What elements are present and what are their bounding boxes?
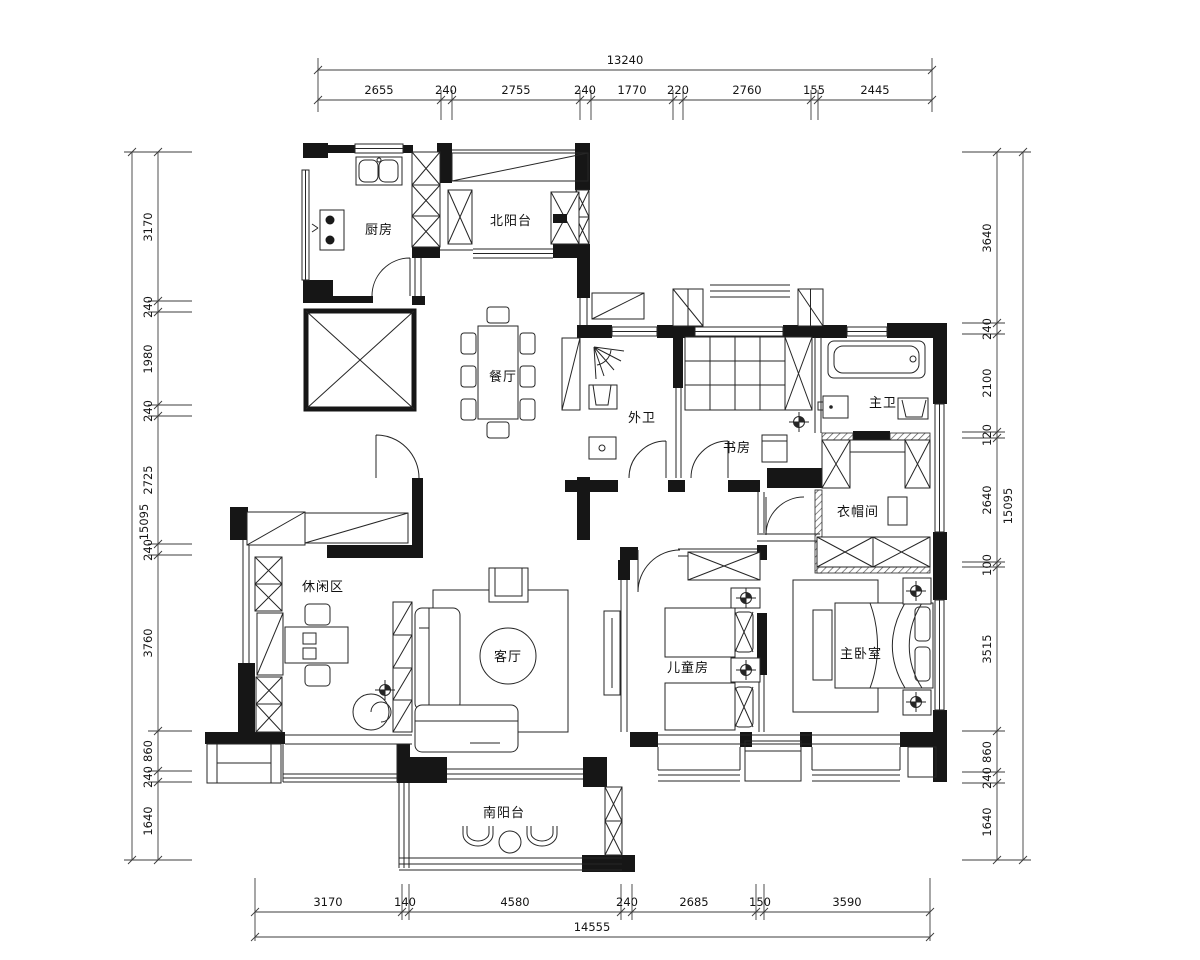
doors-layer [372, 258, 804, 592]
dim-right-seg: 100 [980, 554, 994, 576]
room-label-living: 客厅 [494, 649, 522, 665]
dim-top-seg: 240 [435, 83, 457, 97]
dim-right-seg: 240 [980, 318, 994, 340]
kitchen-stove [312, 210, 344, 250]
dim-right-seg: 3515 [980, 634, 994, 663]
room-label-dining: 餐厅 [489, 369, 517, 385]
washing-machine [551, 192, 579, 244]
dim-left-seg: 1640 [141, 806, 155, 835]
dim-top-seg: 2445 [860, 83, 889, 97]
dim-right-seg: 2640 [980, 485, 994, 514]
dim-bottom-seg: 240 [616, 895, 638, 909]
room-label-north-balcony: 北阳台 [490, 214, 532, 229]
dim-left-seg: 240 [141, 539, 155, 561]
dim-bottom-seg: 150 [749, 895, 771, 909]
dim-left-seg: 240 [141, 766, 155, 788]
dim-bottom-seg: 3590 [832, 895, 861, 909]
room-label-leisure: 休闲区 [302, 580, 344, 595]
dim-bottom-total: 14555 [574, 920, 611, 934]
dim-left-seg: 3760 [141, 628, 155, 657]
dim-right-seg: 2100 [980, 368, 994, 397]
room-label-children: 儿童房 [667, 660, 709, 676]
dim-bottom-seg: 140 [394, 895, 416, 909]
dim-bottom-seg: 4580 [500, 895, 529, 909]
dim-top-seg: 240 [574, 83, 596, 97]
dim-left-seg: 1980 [141, 344, 155, 373]
guest-bath-fixtures [589, 347, 624, 459]
dim-right-seg: 240 [980, 767, 994, 789]
dim-left-seg: 860 [141, 740, 155, 762]
dim-top-seg: 155 [803, 83, 825, 97]
dim-right-seg: 3640 [980, 223, 994, 252]
dim-top-seg: 1770 [617, 83, 646, 97]
dim-left-seg: 2725 [141, 465, 155, 494]
dim-top-seg: 2760 [732, 83, 761, 97]
dim-top-seg: 2655 [364, 83, 393, 97]
dim-bottom-seg: 3170 [313, 895, 342, 909]
cloakroom-wardrobe [817, 537, 930, 567]
dim-left-total: 15095 [137, 504, 151, 541]
room-label-master-bedroom: 主卧室 [840, 646, 882, 662]
elevator-shaft [306, 311, 414, 409]
dim-left-seg: 240 [141, 296, 155, 318]
room-label-study: 书房 [723, 440, 751, 456]
walls-layer [205, 143, 947, 872]
room-label-master-bath: 主卫 [869, 396, 897, 411]
kitchen-sink [356, 157, 402, 185]
dim-right-seg: 1640 [980, 807, 994, 836]
dim-top-seg: 220 [667, 83, 689, 97]
living-furniture [353, 568, 568, 752]
dim-bottom-seg: 2685 [679, 895, 708, 909]
room-label-guest-bath: 外卫 [628, 411, 656, 426]
room-label-south-balcony: 南阳台 [483, 805, 525, 821]
dim-right-total: 15095 [1001, 488, 1015, 525]
room-label-kitchen: 厨房 [365, 222, 393, 238]
floor-plan-page: 13240 2655 240 2755 240 1770 220 2760 15… [0, 0, 1200, 960]
dim-left-seg: 240 [141, 400, 155, 422]
dim-left-seg: 3170 [141, 212, 155, 241]
dim-top-total: 13240 [607, 53, 644, 67]
floor-plan-drawing: 13240 2655 240 2755 240 1770 220 2760 15… [0, 0, 1200, 960]
dim-top-seg: 2755 [501, 83, 530, 97]
dim-right-seg: 860 [980, 741, 994, 763]
dim-right-seg: 120 [980, 424, 994, 446]
balcony-furniture [463, 826, 557, 853]
room-label-cloakroom: 衣帽间 [837, 504, 879, 520]
